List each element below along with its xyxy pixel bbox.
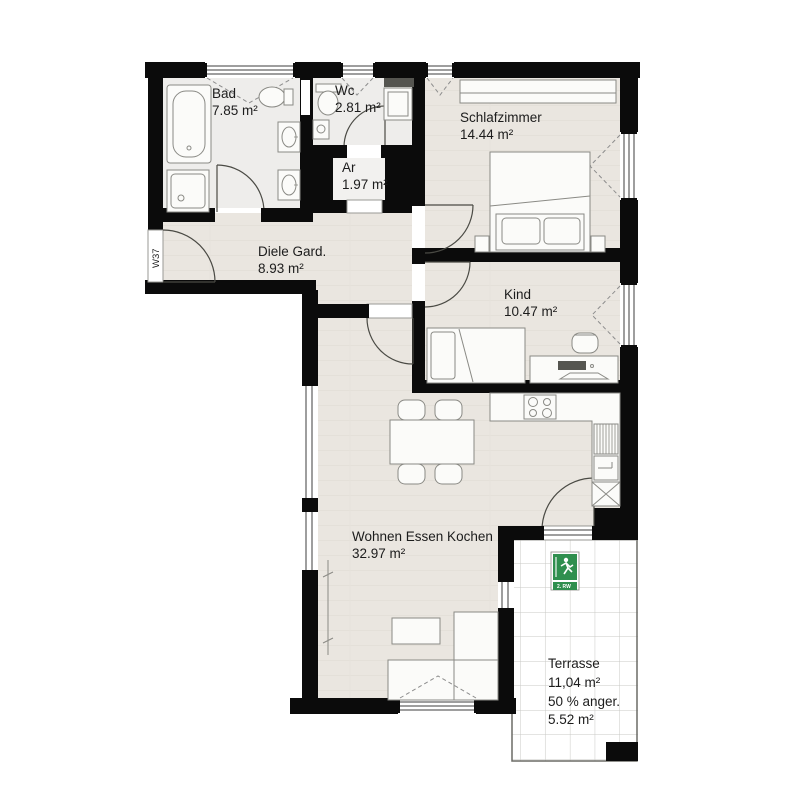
exit-sign-pictogram bbox=[553, 554, 577, 580]
bathtub bbox=[167, 85, 211, 163]
label-kind-name: Kind bbox=[504, 287, 531, 302]
wall-terrace-pillar bbox=[594, 508, 622, 540]
window-wohnen-left-1 bbox=[302, 386, 318, 498]
dining-table bbox=[390, 420, 474, 464]
desk-chair bbox=[572, 333, 598, 353]
wall-left-upper bbox=[148, 62, 163, 230]
floor-plan-drawing: 2. RW Bad 7.85 m² Wc 2.81 m² Ar 1.97 m² … bbox=[0, 0, 800, 799]
wall-wohnen-right-b bbox=[498, 608, 514, 712]
exit-sign-label: 2. RW bbox=[557, 584, 571, 590]
washbasin-wc bbox=[313, 120, 329, 139]
label-terrasse-area: 11,04 m² bbox=[548, 675, 601, 690]
dining-chair-3 bbox=[398, 464, 425, 484]
label-terrasse-note1: 50 % anger. bbox=[548, 694, 620, 709]
label-terrasse-name: Terrasse bbox=[548, 656, 600, 671]
label-bad-area: 7.85 m² bbox=[212, 103, 258, 118]
floor-diele-right bbox=[313, 213, 412, 304]
label-unit: W37 bbox=[151, 248, 162, 268]
cabinet-wc bbox=[384, 88, 412, 120]
label-diele-area: 8.93 m² bbox=[258, 261, 304, 276]
window-wohnen-left-2 bbox=[302, 512, 318, 570]
label-wohnen-area: 32.97 m² bbox=[352, 546, 406, 561]
terrace-pillar bbox=[606, 742, 638, 761]
window-terrace-side bbox=[498, 582, 514, 608]
desk bbox=[530, 356, 618, 383]
dining-chair-2 bbox=[435, 400, 462, 420]
floor-plan-canvas: 2. RW Bad 7.85 m² Wc 2.81 m² Ar 1.97 m² … bbox=[0, 0, 800, 799]
label-ar-area: 1.97 m² bbox=[342, 177, 388, 192]
wall-ar-right bbox=[385, 158, 412, 200]
wall-wc-bottom-l bbox=[313, 145, 344, 158]
tall-cabinet-fridge bbox=[592, 482, 620, 506]
wall-wohnen-left bbox=[302, 290, 318, 712]
label-diele-name: Diele Gard. bbox=[258, 244, 326, 259]
wall-wc-bottom-r bbox=[385, 145, 412, 158]
label-schlafzimmer-area: 14.44 m² bbox=[460, 127, 514, 142]
nightstand-left bbox=[475, 236, 489, 252]
wall-bad-bottom-r bbox=[264, 208, 300, 222]
wall-wohnen-sep bbox=[302, 304, 367, 318]
wall-right-2 bbox=[620, 200, 638, 283]
label-bad-name: Bad bbox=[212, 86, 236, 101]
wall-niche bbox=[301, 80, 310, 115]
washbasin-1 bbox=[278, 122, 300, 152]
label-wc-name: Wc bbox=[335, 83, 355, 98]
wall-bottom-left bbox=[290, 698, 398, 714]
furniture-kind bbox=[427, 328, 618, 383]
wall-right-1 bbox=[620, 62, 638, 132]
wardrobe bbox=[460, 80, 616, 103]
wall-ar-bottom-r bbox=[382, 200, 412, 213]
dining-chair-1 bbox=[398, 400, 425, 420]
label-terrasse-note2: 5.52 m² bbox=[548, 712, 594, 727]
wall-wohnen-right-a bbox=[498, 526, 514, 582]
wall-ar-bottom-l bbox=[313, 200, 347, 213]
shower bbox=[167, 170, 209, 212]
label-wc-area: 2.81 m² bbox=[335, 100, 381, 115]
wall-right-3 bbox=[620, 347, 638, 540]
wall-ar-left bbox=[313, 158, 333, 200]
nightstand-right bbox=[591, 236, 605, 252]
coffee-table bbox=[392, 618, 440, 644]
dining-chair-4 bbox=[435, 464, 462, 484]
exit-sign: 2. RW bbox=[551, 552, 579, 590]
double-bed bbox=[490, 152, 590, 252]
kind-bed bbox=[427, 328, 525, 383]
ar-door bbox=[347, 200, 382, 213]
shaft-duct bbox=[384, 78, 414, 87]
wall-kind-left bbox=[412, 304, 425, 393]
label-wohnen-name: Wohnen Essen Kochen bbox=[352, 529, 493, 544]
label-kind-area: 10.47 m² bbox=[504, 304, 558, 319]
toilet-bad bbox=[259, 87, 293, 107]
washbasin-2 bbox=[278, 170, 300, 200]
label-ar-name: Ar bbox=[342, 160, 356, 175]
label-schlafzimmer-name: Schlafzimmer bbox=[460, 110, 542, 125]
